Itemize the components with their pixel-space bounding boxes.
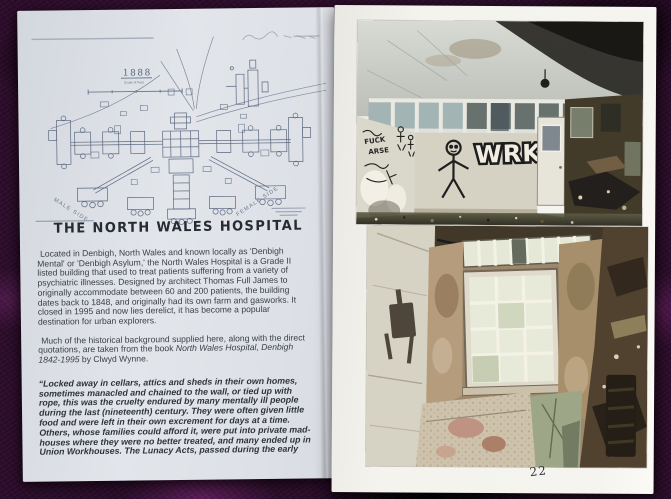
source-paragraph: Much of the historical background suppli…: [38, 333, 311, 365]
right-page: FUCK ARSE WRKN: [332, 5, 657, 494]
page-number: 22: [529, 463, 548, 479]
left-page: 1888 Scale of Feet: [17, 7, 340, 482]
plan-lower-wings: [77, 156, 286, 217]
photo-graffiti-room: FUCK ARSE WRKN: [356, 20, 643, 226]
photo-backdrop: 1888 Scale of Feet: [0, 0, 671, 499]
intro-paragraph: Located in Denbigh, North Wales and know…: [37, 246, 311, 327]
page-title: THE NORTH WALES HOSPITAL: [38, 218, 319, 237]
plan-year-label: 1888: [123, 68, 152, 78]
site-plan-1888: 1888 Scale of Feet: [29, 29, 329, 229]
plan-ward-wings: [48, 113, 311, 169]
plan-footnote-right: [272, 207, 306, 216]
pencil-note: [239, 23, 323, 50]
article-text: Located in Denbigh, North Wales and know…: [37, 246, 313, 457]
plan-running-head: [31, 37, 153, 40]
plan-scale-label: Scale of Feet: [124, 80, 144, 84]
quote-paragraph: “Locked away in cellars, attics and shed…: [39, 376, 313, 458]
plan-detached-blocks: [226, 60, 269, 107]
plan-central-complex: [162, 113, 199, 225]
source-text-suffix: by Clwyd Wynne.: [79, 353, 148, 364]
photo-derelict-window: [366, 225, 648, 468]
